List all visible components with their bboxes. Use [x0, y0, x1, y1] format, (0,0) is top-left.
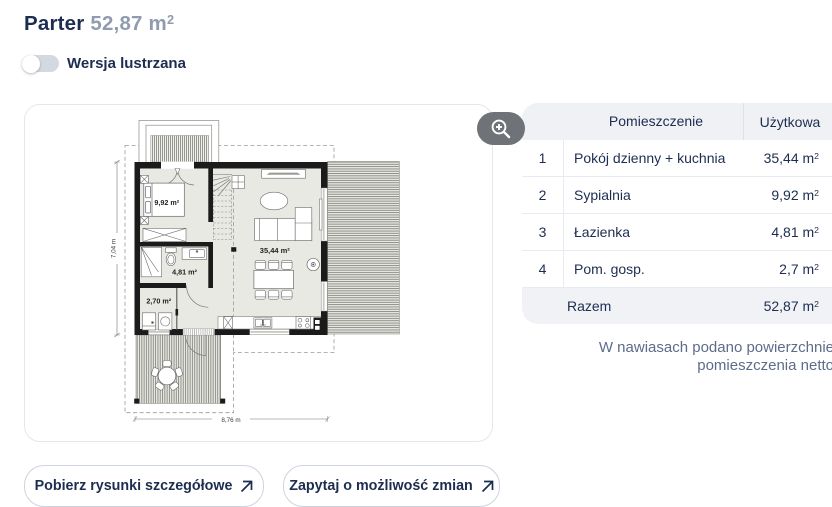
- svg-text:2,70 m²: 2,70 m²: [146, 296, 171, 305]
- svg-text:7,04 m: 7,04 m: [111, 239, 118, 258]
- svg-text:8,76 m: 8,76 m: [221, 417, 240, 424]
- svg-text:4,81 m²: 4,81 m²: [172, 268, 197, 277]
- svg-text:35,44 m²: 35,44 m²: [260, 246, 291, 255]
- svg-text:9,92 m²: 9,92 m²: [154, 198, 179, 207]
